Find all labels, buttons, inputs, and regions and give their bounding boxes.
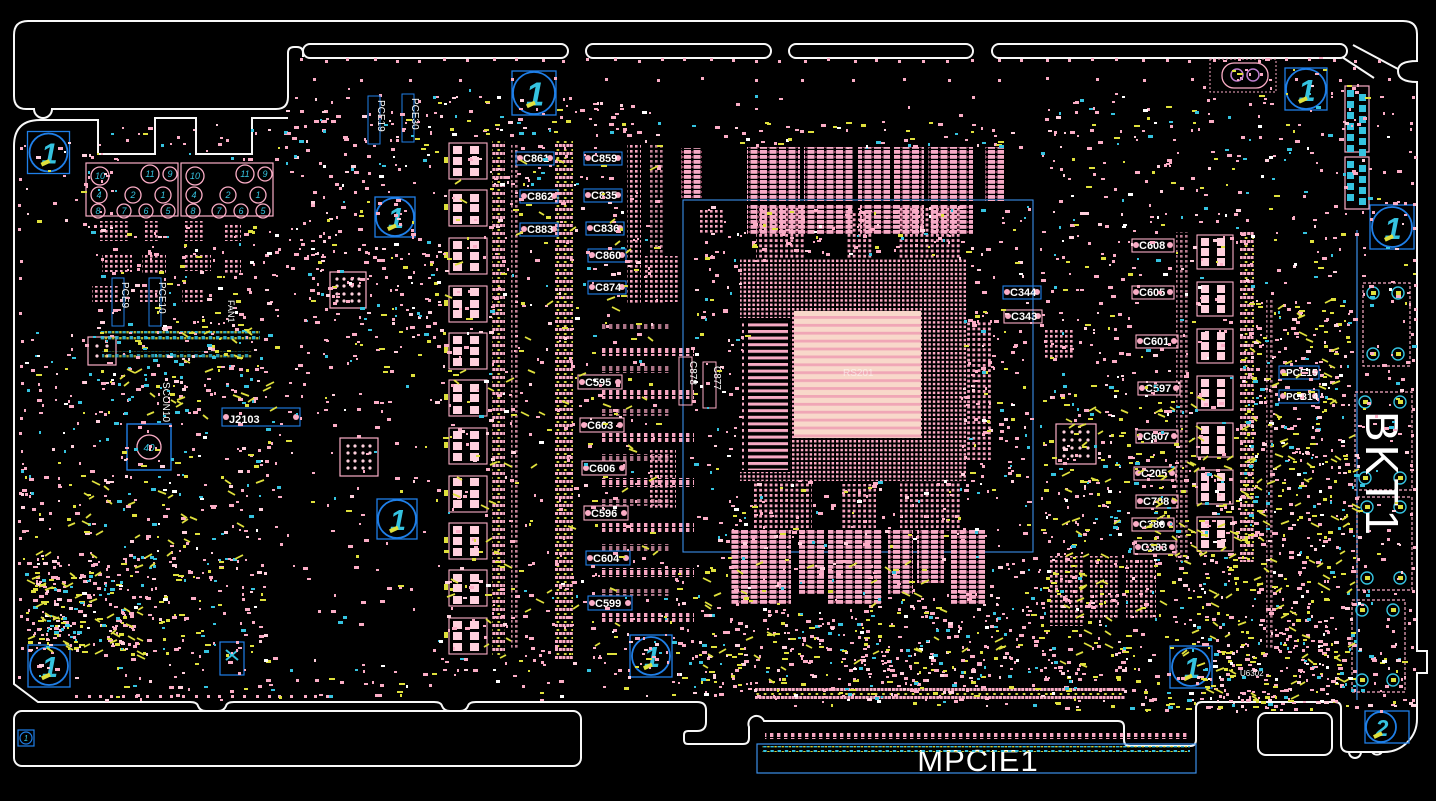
svg-text:C383: C383 bbox=[1141, 542, 1167, 554]
svg-text:1: 1 bbox=[1184, 653, 1200, 685]
svg-text:10: 10 bbox=[190, 171, 200, 181]
svg-text:1: 1 bbox=[24, 734, 28, 743]
svg-text:PCE9: PCE9 bbox=[119, 282, 130, 309]
svg-text:4: 4 bbox=[191, 190, 196, 200]
svg-text:C860: C860 bbox=[595, 250, 621, 262]
svg-text:8: 8 bbox=[190, 206, 195, 216]
svg-text:C859: C859 bbox=[591, 153, 617, 165]
svg-text:1: 1 bbox=[41, 139, 57, 171]
svg-text:1: 1 bbox=[160, 190, 165, 200]
svg-text:C862: C862 bbox=[527, 191, 553, 203]
svg-text:6: 6 bbox=[238, 206, 243, 216]
svg-text:4: 4 bbox=[96, 190, 101, 200]
svg-text:2: 2 bbox=[129, 190, 135, 200]
svg-text:C595: C595 bbox=[585, 377, 611, 389]
svg-text:C344: C344 bbox=[1010, 287, 1037, 299]
svg-text:9: 9 bbox=[167, 169, 172, 179]
svg-text:10: 10 bbox=[95, 171, 105, 181]
svg-text:C877: C877 bbox=[711, 366, 722, 390]
svg-text:PCE10: PCE10 bbox=[156, 282, 167, 314]
svg-text:9: 9 bbox=[262, 169, 267, 179]
svg-text:C836: C836 bbox=[593, 223, 619, 235]
svg-text:C883: C883 bbox=[527, 224, 553, 236]
svg-text:11: 11 bbox=[145, 169, 154, 179]
svg-text:C343: C343 bbox=[1011, 311, 1037, 323]
svg-text:1: 1 bbox=[388, 203, 404, 235]
svg-text:1: 1 bbox=[390, 505, 406, 537]
svg-text:C603: C603 bbox=[587, 420, 613, 432]
svg-text:1: 1 bbox=[255, 190, 260, 200]
svg-text:6: 6 bbox=[143, 206, 148, 216]
svg-text:J2103: J2103 bbox=[229, 414, 260, 426]
svg-text:C601: C601 bbox=[1143, 336, 1169, 348]
svg-text:8: 8 bbox=[95, 206, 100, 216]
svg-text:C606: C606 bbox=[589, 463, 615, 475]
svg-text:C874: C874 bbox=[595, 282, 622, 294]
svg-text:BKT1: BKT1 bbox=[1356, 411, 1408, 538]
svg-text:2: 2 bbox=[224, 190, 230, 200]
svg-text:RS201: RS201 bbox=[843, 368, 874, 379]
svg-text:11: 11 bbox=[240, 169, 249, 179]
